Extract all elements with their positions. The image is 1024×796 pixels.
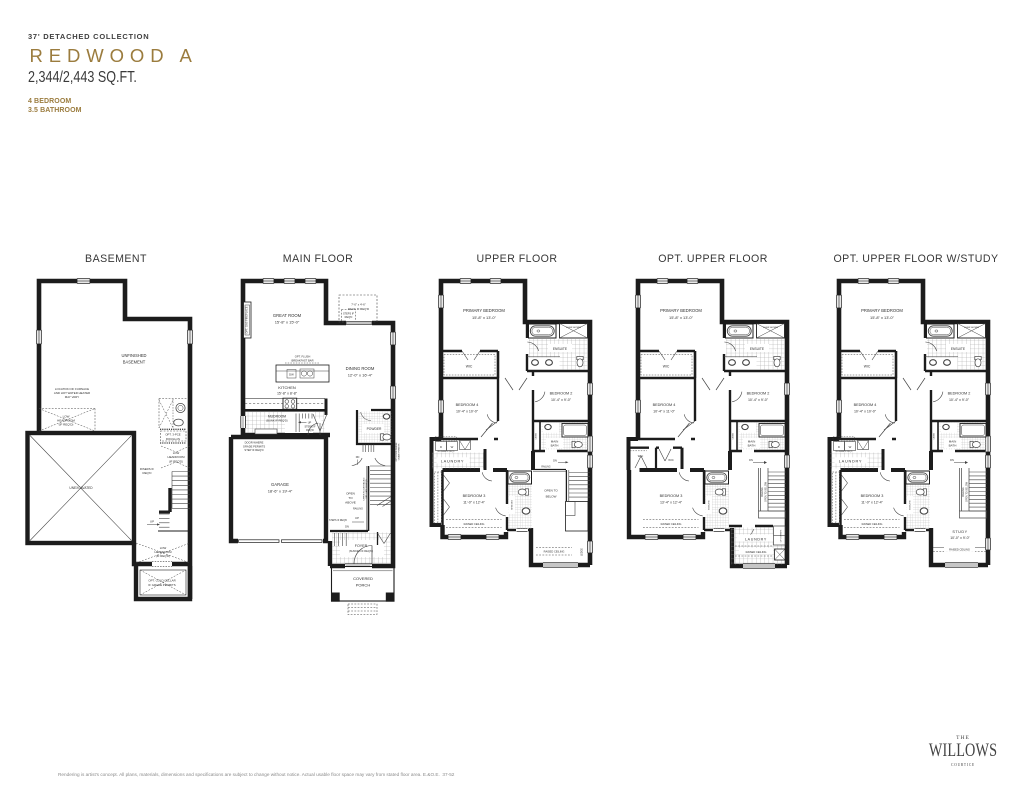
svg-text:D: D bbox=[440, 445, 442, 449]
svg-text:STEPS IF REQ'D: STEPS IF REQ'D bbox=[329, 520, 347, 522]
svg-text:BULKHEAD IF REQ'D: BULKHEAD IF REQ'D bbox=[836, 450, 854, 453]
svg-text:BEDROOM 4: BEDROOM 4 bbox=[854, 403, 877, 407]
svg-text:10'-4" x 9'-0": 10'-4" x 9'-0" bbox=[748, 398, 769, 402]
svg-text:BEDROOM 3: BEDROOM 3 bbox=[660, 494, 683, 498]
svg-text:LINEN: LINEN bbox=[733, 432, 735, 439]
svg-text:UNFINISHED: UNFINISHED bbox=[121, 353, 146, 358]
svg-text:10'-4" x 9'-0": 10'-4" x 9'-0" bbox=[551, 398, 572, 402]
svg-text:10'-4" x 9'-0": 10'-4" x 9'-0" bbox=[949, 398, 970, 402]
svg-text:REQ'D: REQ'D bbox=[345, 316, 353, 319]
svg-text:10'-0" x 9'-0": 10'-0" x 9'-0" bbox=[950, 536, 970, 540]
svg-text:OPT. UPPERS: OPT. UPPERS bbox=[440, 439, 453, 441]
svg-text:UP: UP bbox=[308, 420, 312, 424]
svg-text:KITCHEN: KITCHEN bbox=[278, 385, 296, 390]
svg-text:BEDROOM 3: BEDROOM 3 bbox=[861, 494, 884, 498]
svg-text:UP: UP bbox=[355, 516, 359, 520]
svg-text:WIC: WIC bbox=[864, 365, 871, 369]
svg-text:REQ'D: REQ'D bbox=[143, 471, 152, 475]
svg-text:PRIMARY BEDROOM: PRIMARY BEDROOM bbox=[660, 308, 702, 313]
svg-text:12'-0" x 16'-4": 12'-0" x 16'-4" bbox=[348, 373, 373, 378]
svg-text:POWDER: POWDER bbox=[367, 427, 382, 431]
svg-text:BATH: BATH bbox=[748, 444, 756, 448]
svg-text:BULKHEAD IF REQ'D: BULKHEAD IF REQ'D bbox=[438, 450, 456, 453]
svg-text:PRIMARY BEDROOM: PRIMARY BEDROOM bbox=[861, 308, 903, 313]
svg-text:IF GRADE PERMITS: IF GRADE PERMITS bbox=[148, 583, 175, 587]
svg-text:11'-0" x 12'-4": 11'-0" x 12'-4" bbox=[861, 501, 884, 505]
svg-text:BEDROOM 2: BEDROOM 2 bbox=[948, 392, 971, 396]
svg-text:18'-6" x 19'-4": 18'-6" x 19'-4" bbox=[268, 489, 293, 494]
svg-text:STEP IF REQ'D: STEP IF REQ'D bbox=[244, 448, 263, 452]
svg-text:10'-4" x 10'-0": 10'-4" x 10'-0" bbox=[854, 410, 877, 414]
svg-text:RAILING: RAILING bbox=[353, 508, 363, 511]
svg-text:RAISED CEILING: RAISED CEILING bbox=[464, 522, 485, 526]
svg-text:BEDROOM 2: BEDROOM 2 bbox=[747, 392, 770, 396]
svg-text:TO: TO bbox=[348, 496, 353, 500]
svg-text:OPEN TO BELOW: OPEN TO BELOW bbox=[965, 481, 968, 502]
svg-text:(BUNK IF REQ'D): (BUNK IF REQ'D) bbox=[266, 419, 288, 423]
svg-text:RAISED CEILING: RAISED CEILING bbox=[862, 522, 883, 526]
svg-text:13'-4" x 12'-4": 13'-4" x 12'-4" bbox=[660, 501, 683, 505]
svg-text:(IF REQ'D): (IF REQ'D) bbox=[59, 423, 74, 427]
svg-text:ABOVE: ABOVE bbox=[345, 501, 356, 505]
svg-text:RAISED CEILING: RAISED CEILING bbox=[746, 550, 767, 554]
svg-text:REQ'D: REQ'D bbox=[306, 429, 314, 432]
svg-text:OPEN: OPEN bbox=[346, 492, 355, 496]
svg-text:7'-0" x 4'-6": 7'-0" x 4'-6" bbox=[351, 303, 366, 307]
svg-text:UP: UP bbox=[150, 520, 154, 524]
svg-text:GRADE PERMITS: GRADE PERMITS bbox=[397, 443, 400, 460]
svg-text:10'-4" x 11'-0": 10'-4" x 11'-0" bbox=[653, 410, 676, 414]
svg-text:15'-8" x 13'-0": 15'-8" x 13'-0" bbox=[472, 315, 497, 320]
svg-text:W: W bbox=[849, 445, 852, 449]
svg-text:10'-4" x 10'-0": 10'-4" x 10'-0" bbox=[456, 410, 479, 414]
svg-text:RAISED CEILING: RAISED CEILING bbox=[661, 522, 682, 526]
svg-text:DOOR WHERE: DOOR WHERE bbox=[245, 441, 264, 445]
svg-text:LAUNDRY: LAUNDRY bbox=[745, 537, 767, 541]
svg-text:ENSUITE: ENSUITE bbox=[750, 347, 765, 351]
svg-text:BASEMENT: BASEMENT bbox=[123, 360, 146, 365]
svg-text:GRADE PERMITS: GRADE PERMITS bbox=[243, 444, 265, 448]
svg-text:DN: DN bbox=[356, 456, 360, 459]
svg-text:DN: DN bbox=[345, 525, 349, 529]
svg-text:LAUNDRY: LAUNDRY bbox=[441, 458, 464, 463]
svg-text:OPT. FLUSH: OPT. FLUSH bbox=[295, 355, 311, 359]
svg-text:LINEN: LINEN bbox=[934, 432, 936, 439]
svg-text:15'-8" x 8'-8": 15'-8" x 8'-8" bbox=[277, 392, 298, 396]
svg-text:15'-8" x 13'-0": 15'-8" x 13'-0" bbox=[669, 315, 694, 320]
svg-text:LEDGE: LEDGE bbox=[582, 548, 584, 556]
svg-text:PORCH: PORCH bbox=[356, 583, 371, 588]
svg-text:D: D bbox=[838, 445, 840, 449]
svg-text:ROUGH-IN: ROUGH-IN bbox=[166, 437, 180, 441]
svg-text:BATH: BATH bbox=[949, 444, 957, 448]
svg-text:ENSUITE: ENSUITE bbox=[910, 500, 912, 510]
svg-text:OPT. GATE IF REQ'D: OPT. GATE IF REQ'D bbox=[365, 479, 368, 499]
svg-text:ENSUITE: ENSUITE bbox=[951, 347, 966, 351]
svg-text:DINING ROOM: DINING ROOM bbox=[346, 366, 375, 371]
svg-text:UNEXCAVATED: UNEXCAVATED bbox=[69, 486, 93, 490]
svg-text:MAY VARY: MAY VARY bbox=[65, 395, 79, 399]
svg-text:DECK IF REQ'D: DECK IF REQ'D bbox=[348, 307, 369, 311]
svg-text:MUDROOM: MUDROOM bbox=[268, 415, 286, 419]
svg-text:BEDROOM 2: BEDROOM 2 bbox=[550, 392, 573, 396]
svg-text:BREAKFAST BAR: BREAKFAST BAR bbox=[291, 359, 313, 363]
svg-text:(IF REQ'D): (IF REQ'D) bbox=[156, 554, 170, 558]
svg-text:GLASS SHOWER: GLASS SHOWER bbox=[763, 326, 779, 329]
svg-text:15'-8" x 13'-0": 15'-8" x 13'-0" bbox=[870, 315, 895, 320]
svg-text:RAILING: RAILING bbox=[541, 466, 550, 469]
svg-text:(SUNKEN IF REQ'D): (SUNKEN IF REQ'D) bbox=[349, 549, 373, 553]
svg-text:BEDROOM 4: BEDROOM 4 bbox=[653, 403, 676, 407]
svg-text:GREAT ROOM: GREAT ROOM bbox=[273, 313, 302, 318]
svg-text:COVERED: COVERED bbox=[353, 576, 373, 581]
svg-text:LAUNDRY: LAUNDRY bbox=[839, 458, 862, 463]
svg-text:ENSUITE: ENSUITE bbox=[553, 347, 568, 351]
svg-text:15'-8" x 15'-0": 15'-8" x 15'-0" bbox=[275, 320, 300, 325]
svg-text:DN: DN bbox=[553, 459, 557, 463]
svg-text:BEDROOM 4: BEDROOM 4 bbox=[456, 403, 479, 407]
svg-text:OPT. COLD CELLAR: OPT. COLD CELLAR bbox=[148, 579, 175, 583]
svg-text:GLASS SHOWER: GLASS SHOWER bbox=[964, 326, 980, 329]
svg-text:STUDY: STUDY bbox=[952, 530, 967, 534]
svg-text:OPT. UPPERS: OPT. UPPERS bbox=[781, 529, 783, 542]
svg-text:OPT. GAS FIREPLACE: OPT. GAS FIREPLACE bbox=[245, 306, 249, 333]
svg-text:DN: DN bbox=[749, 458, 753, 462]
svg-text:BATH: BATH bbox=[551, 444, 559, 448]
svg-text:DW: DW bbox=[289, 373, 294, 377]
svg-text:PRIMARY BEDROOM: PRIMARY BEDROOM bbox=[463, 308, 505, 313]
svg-text:W: W bbox=[451, 445, 454, 449]
svg-text:LINEN: LINEN bbox=[536, 432, 538, 439]
svg-text:(IF REQ'D): (IF REQ'D) bbox=[169, 459, 183, 463]
svg-text:FOYER: FOYER bbox=[355, 544, 368, 548]
svg-text:RAISED CEILING: RAISED CEILING bbox=[949, 548, 970, 552]
svg-text:WIC: WIC bbox=[466, 365, 473, 369]
svg-text:OPT. UPPERS: OPT. UPPERS bbox=[838, 439, 851, 441]
svg-text:ENSUITE: ENSUITE bbox=[709, 500, 711, 510]
svg-text:RAISED CEILING: RAISED CEILING bbox=[544, 550, 565, 554]
svg-text:SHELVES: SHELVES bbox=[512, 499, 514, 509]
svg-text:WIC: WIC bbox=[663, 365, 670, 369]
svg-text:GLASS SHOWER: GLASS SHOWER bbox=[566, 326, 582, 329]
svg-text:11'-0" x 12'-4": 11'-0" x 12'-4" bbox=[463, 501, 486, 505]
svg-text:OPEN TO: OPEN TO bbox=[544, 489, 558, 493]
svg-text:BEDROOM 3: BEDROOM 3 bbox=[463, 494, 486, 498]
svg-text:WIC: WIC bbox=[668, 458, 673, 462]
svg-text:OPEN TO BELOW: OPEN TO BELOW bbox=[764, 481, 767, 502]
svg-text:DN: DN bbox=[950, 458, 954, 462]
svg-text:BELOW: BELOW bbox=[546, 494, 557, 498]
svg-text:GARAGE: GARAGE bbox=[271, 482, 289, 487]
